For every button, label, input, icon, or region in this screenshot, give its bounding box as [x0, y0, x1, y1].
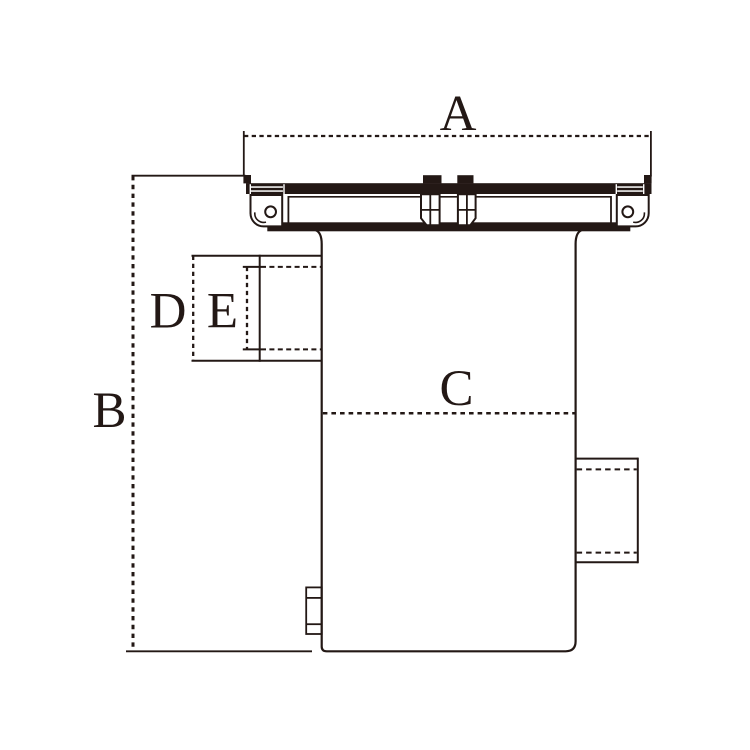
flange-left-notch [243, 175, 251, 183]
right-outlet-socket [576, 458, 638, 564]
right-clamp-stripe-1 [617, 186, 643, 188]
left-clamp-separator-outer [250, 184, 251, 194]
dim-label-b: B [92, 383, 126, 439]
bottom-left-tab [306, 587, 322, 634]
lid-tab-right [457, 175, 473, 183]
dimension-b: B [92, 176, 312, 652]
flange-top-bar [246, 183, 652, 194]
technical-drawing: C D E B A [0, 0, 750, 750]
right-clamp-separator-outer [643, 184, 644, 194]
left-bolt-hole [265, 206, 276, 217]
dim-label-c: C [439, 361, 473, 417]
dimension-c: C [323, 361, 575, 417]
dimension-a: A [244, 86, 651, 177]
tab-outline [306, 587, 322, 634]
body-outline [316, 230, 582, 651]
dim-label-e: E [207, 284, 238, 340]
dim-label-a: A [440, 86, 477, 142]
right-clamp-stripe-2 [617, 190, 643, 192]
lid-tab-left [423, 175, 442, 183]
right-bolt-hole [622, 206, 633, 217]
dim-label-d: D [150, 284, 187, 340]
drain-body [316, 230, 582, 651]
top-flange-assembly [243, 175, 651, 231]
drawing-canvas: C D E B A [0, 0, 750, 750]
dimension-e: E [207, 267, 247, 350]
left-clamp-stripe-2 [251, 190, 283, 192]
flange-right-notch [644, 175, 652, 183]
flange-under-plate [267, 222, 630, 231]
left-clamp-separator-inner [283, 184, 284, 194]
dimension-d: D [150, 256, 194, 361]
left-clamp-stripe-1 [251, 186, 283, 188]
right-clamp-separator-inner [616, 184, 617, 194]
